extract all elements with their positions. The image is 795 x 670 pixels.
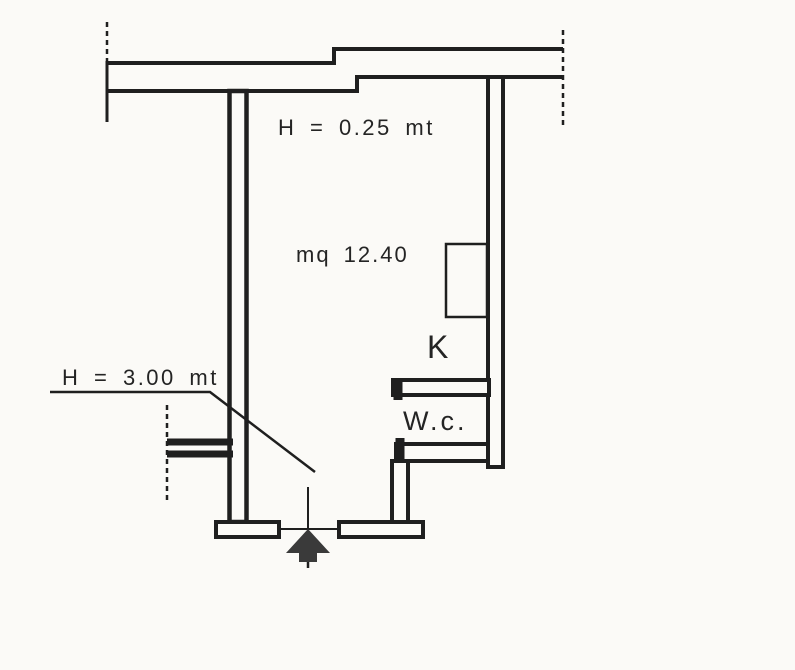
- label-area: mq 12.40: [296, 242, 409, 267]
- top-wall-outer-line: [107, 49, 563, 63]
- label-room-height: H = 3.00 mt: [62, 365, 219, 390]
- left-wall-footing: [216, 522, 279, 537]
- wc-bottom-wall: [396, 444, 488, 461]
- wc-top-wall: [393, 380, 489, 395]
- top-wall-inner-line: [107, 77, 489, 91]
- label-wc: W.c.: [403, 406, 468, 436]
- floor-plan-drawing: H = 0.25 mt mq 12.40 K W.c. H = 3.00 mt: [0, 0, 795, 670]
- right-footing: [339, 522, 423, 537]
- right-wall: [488, 77, 503, 467]
- label-upper-height: H = 0.25 mt: [278, 115, 435, 140]
- entrance-arrow-icon: [286, 529, 330, 562]
- kitchen-counter: [446, 244, 487, 317]
- wc-left-wall: [392, 461, 408, 523]
- label-kitchen: K: [427, 329, 448, 365]
- floor-plan-sheet: H = 0.25 mt mq 12.40 K W.c. H = 3.00 mt: [0, 0, 795, 670]
- room-height-leader-line: [50, 392, 315, 472]
